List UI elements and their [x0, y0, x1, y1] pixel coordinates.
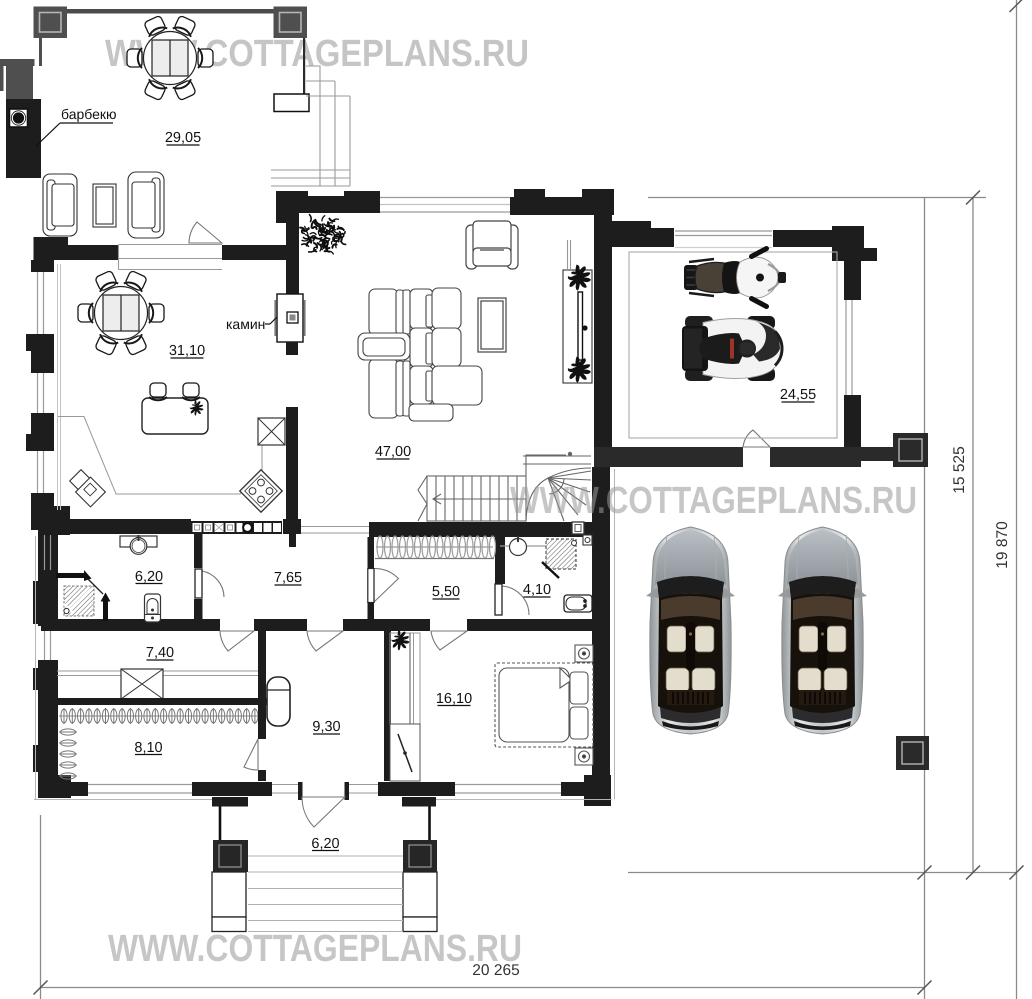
svg-text:WWW.COTTAGEPLANS.RU: WWW.COTTAGEPLANS.RU — [108, 928, 522, 970]
svg-text:24,55: 24,55 — [780, 387, 816, 403]
svg-text:29,05: 29,05 — [165, 130, 201, 146]
svg-text:31,10: 31,10 — [169, 343, 205, 359]
svg-text:барбекю: барбекю — [61, 106, 117, 122]
svg-text:5,50: 5,50 — [432, 584, 460, 600]
svg-text:9,30: 9,30 — [312, 719, 340, 735]
svg-text:WWW.COTTAGEPLANS.RU: WWW.COTTAGEPLANS.RU — [510, 480, 917, 522]
svg-text:19 870: 19 870 — [994, 521, 1011, 569]
svg-text:16,10: 16,10 — [436, 691, 472, 707]
svg-text:15 525: 15 525 — [951, 446, 968, 493]
svg-text:8,10: 8,10 — [134, 740, 162, 756]
svg-text:4,10: 4,10 — [523, 582, 551, 598]
svg-text:7,65: 7,65 — [274, 570, 302, 586]
svg-text:47,00: 47,00 — [375, 444, 411, 460]
svg-text:камин: камин — [226, 316, 265, 332]
svg-text:6,20: 6,20 — [135, 569, 163, 585]
svg-text:7,40: 7,40 — [146, 645, 174, 661]
svg-text:6,20: 6,20 — [311, 836, 339, 852]
